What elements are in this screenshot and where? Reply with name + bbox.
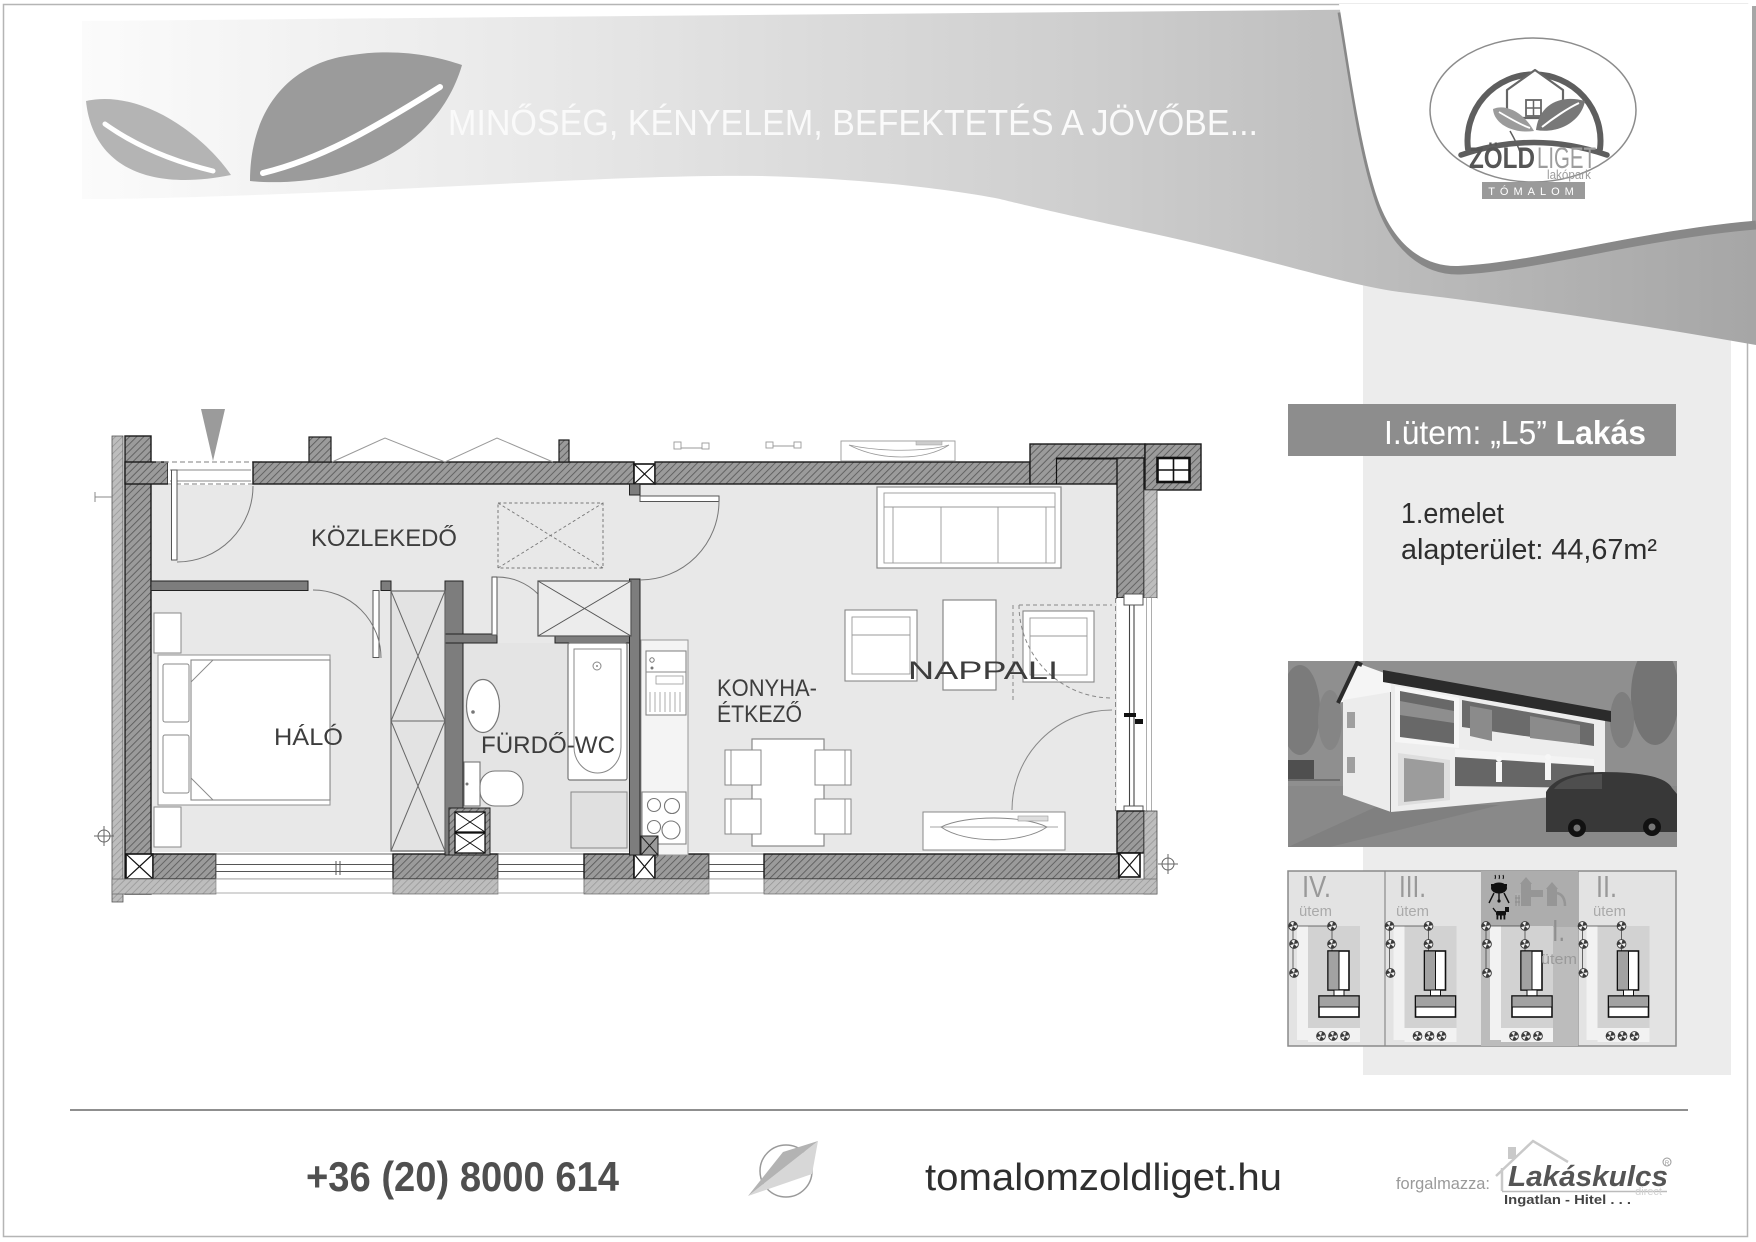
svg-text:TÓMALOM: TÓMALOM [1488,185,1579,198]
svg-text:MINŐSÉG, KÉNYELEM, BEFEKTETÉS: MINŐSÉG, KÉNYELEM, BEFEKTETÉS A JÖVŐBE..… [448,102,1258,143]
svg-text:Ingatlan - Hitel . . .: Ingatlan - Hitel . . . [1504,1192,1631,1207]
svg-text:III.: III. [1399,869,1426,904]
svg-text:ütem: ütem [1593,903,1626,920]
svg-text:R: R [1665,1161,1670,1167]
svg-text:alapterület: 44,67m²: alapterület: 44,67m² [1401,534,1657,566]
svg-text:KÖZLEKEDŐ: KÖZLEKEDŐ [311,525,457,552]
svg-text:I.ütem: „L5” Lakás: I.ütem: „L5” Lakás [1384,414,1646,451]
svg-text:ZÖLD: ZÖLD [1469,142,1535,175]
svg-text:+36 (20) 8000 614: +36 (20) 8000 614 [306,1153,620,1200]
svg-text:KONYHA-: KONYHA- [717,675,817,702]
svg-text:forgalmazza:: forgalmazza: [1396,1174,1490,1193]
svg-text:1.emelet: 1.emelet [1401,498,1504,530]
svg-text:direct: direct [1635,1186,1662,1198]
svg-text:II.: II. [1596,869,1617,904]
svg-text:HÁLÓ: HÁLÓ [274,724,343,751]
svg-text:ütem: ütem [1299,903,1332,920]
svg-text:I.: I. [1552,913,1565,948]
svg-text:lakópark: lakópark [1547,167,1591,182]
svg-text:IV.: IV. [1302,869,1331,904]
svg-text:ÉTKEZŐ: ÉTKEZŐ [717,701,802,728]
svg-text:NAPPALI: NAPPALI [908,657,1058,685]
svg-text:FÜRDŐ-WC: FÜRDŐ-WC [481,732,615,759]
svg-text:tomalomzoldliget.hu: tomalomzoldliget.hu [925,1157,1282,1199]
svg-text:ütem: ütem [1541,951,1577,968]
svg-text:ütem: ütem [1396,903,1429,920]
